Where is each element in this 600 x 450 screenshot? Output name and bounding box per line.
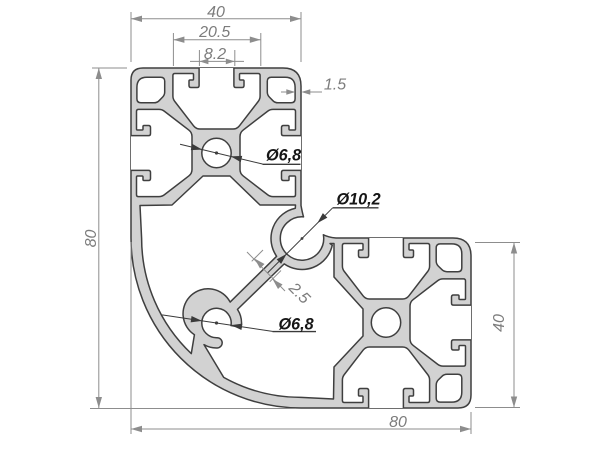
svg-text:Ø10,2: Ø10,2 bbox=[337, 191, 381, 209]
svg-text:40: 40 bbox=[491, 314, 508, 332]
svg-text:80: 80 bbox=[389, 414, 407, 431]
svg-text:1.5: 1.5 bbox=[324, 77, 346, 94]
svg-text:Ø6,8: Ø6,8 bbox=[266, 147, 301, 165]
svg-text:40: 40 bbox=[207, 4, 225, 21]
svg-text:Ø6,8: Ø6,8 bbox=[279, 316, 314, 334]
svg-text:80: 80 bbox=[83, 230, 100, 248]
svg-text:8.2: 8.2 bbox=[204, 46, 226, 63]
svg-text:20.5: 20.5 bbox=[198, 24, 230, 41]
